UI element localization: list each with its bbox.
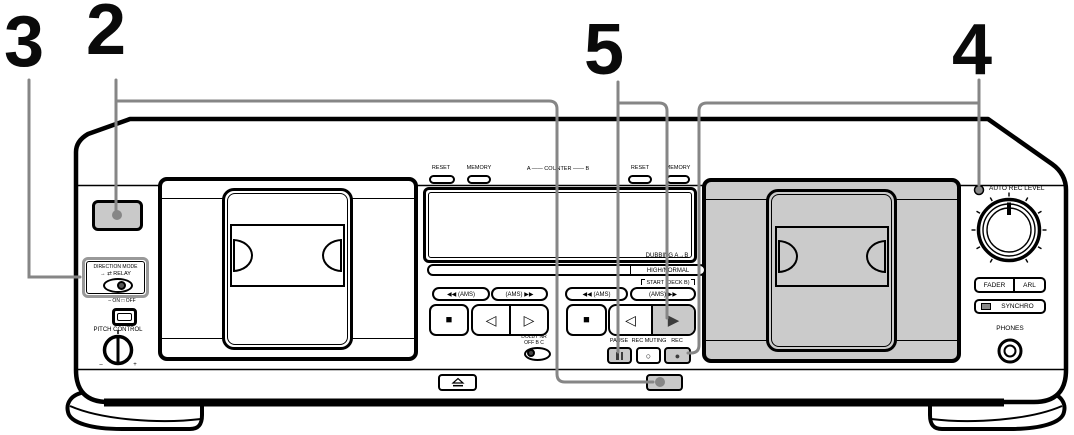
pitch-onoff-button-face: [117, 313, 132, 321]
dolby-nr-options: OFF B C: [514, 341, 554, 346]
fader-button[interactable]: FADER: [976, 279, 1015, 291]
dubbing-speed-label: HIGH/NORMAL: [632, 268, 704, 274]
dubbing-label: DUBBING A→B: [630, 253, 704, 259]
deck-a-play-reverse-button[interactable]: ◁: [473, 306, 509, 334]
deck-b-cassette-right-hub: [866, 240, 886, 273]
start-deck-b-label: START (DECK B): [626, 279, 710, 287]
play-forward-icon: ▷: [524, 312, 535, 329]
deck-b-eject-button[interactable]: [646, 374, 683, 391]
callout-step-3: 3: [4, 6, 42, 78]
deck-b-memory-button[interactable]: [666, 175, 690, 184]
direction-mode-switch-knob[interactable]: [117, 281, 126, 290]
pause-button[interactable]: [607, 347, 632, 364]
pitch-minus-mark: –: [97, 362, 105, 368]
auto-rec-level-led: [975, 186, 984, 195]
deck-b-reset-button[interactable]: [628, 175, 652, 184]
deck-b-play-buttons: ◁ ▶: [608, 304, 696, 336]
power-button[interactable]: [92, 200, 143, 231]
direction-mode-panel: DIRECTION MODE → ⇄ RELAY: [86, 261, 145, 294]
dolby-nr-switch[interactable]: [524, 347, 551, 361]
callout-step-2: 2: [86, 0, 124, 66]
deck-b-window: [766, 189, 897, 352]
deck-a-door[interactable]: [158, 177, 418, 361]
callout-step-4: 4: [952, 14, 990, 86]
deck-a-cassette: [230, 224, 345, 287]
deck-a-window: [222, 188, 353, 350]
display-panel-inner: [428, 192, 692, 258]
dubbing-speed-bar[interactable]: HIGH/NORMAL: [427, 264, 706, 276]
synchro-button-label: SYNCHRO: [991, 303, 1044, 310]
deck-a-stop-button[interactable]: ■: [429, 304, 469, 336]
deck-b-door[interactable]: [702, 178, 961, 363]
synchro-button[interactable]: SYNCHRO: [974, 299, 1046, 314]
counter-label: A —— COUNTER —— B: [520, 167, 596, 173]
stop-icon: ■: [446, 314, 453, 326]
deck-b-ffwd-ams-button[interactable]: (AMS) ▶▶: [630, 287, 696, 301]
deck-b-play-forward-button[interactable]: ▶: [653, 306, 694, 334]
auto-rec-level-label: AUTO REC LEVEL: [989, 186, 1069, 193]
phones-label: PHONES: [989, 326, 1031, 333]
arl-button-label: ARL: [1023, 282, 1036, 289]
pitch-onoff-label: – ON □ OFF: [92, 299, 152, 304]
callout-step-5: 5: [584, 14, 622, 86]
dolby-nr-label: DOLBY NR: [514, 335, 554, 340]
pitch-onoff-button[interactable]: [112, 308, 137, 326]
start-bracket-left: [641, 279, 645, 285]
pitch-plus-mark: +: [131, 362, 139, 368]
eject-icon: [450, 377, 466, 388]
deck-a-reset-label: RESET: [427, 166, 455, 172]
record-icon: ●: [675, 351, 680, 361]
arl-button[interactable]: ARL: [1015, 279, 1044, 291]
deck-a-memory-label: MEMORY: [462, 166, 496, 172]
deck-b-memory-label: MEMORY: [661, 166, 695, 172]
direction-mode-switch[interactable]: [103, 278, 133, 293]
pause-icon: [616, 352, 619, 360]
direction-mode-label: DIRECTION MODE: [87, 265, 144, 270]
stop-icon: ■: [583, 314, 590, 326]
plinth-band: [104, 399, 1004, 407]
rec-label: REC: [663, 339, 691, 345]
deck-b-reset-label: RESET: [626, 166, 654, 172]
pause-icon: [621, 352, 624, 360]
deck-b-play-reverse-button[interactable]: ◁: [610, 306, 651, 334]
dubbing-speed-divider: [630, 266, 631, 274]
deck-b-cassette-left-hub: [778, 240, 798, 273]
pitch-control-label: PITCH CONTROL: [78, 327, 158, 333]
deck-a-reset-button[interactable]: [429, 175, 455, 184]
fader-arl-buttons: FADER ARL: [974, 277, 1046, 293]
deck-b-rewind-ams-button[interactable]: ◀◀ (AMS): [565, 287, 628, 301]
start-bracket-right: [691, 279, 695, 285]
deck-a-play-buttons: ◁ ▷: [471, 304, 549, 336]
deck-b-stop-button[interactable]: ■: [566, 304, 607, 336]
rec-button[interactable]: ●: [664, 347, 691, 364]
phones-jack[interactable]: [999, 340, 1021, 362]
deck-a-eject-button[interactable]: [438, 374, 477, 391]
direction-mode-positions: → ⇄ RELAY: [87, 272, 144, 278]
play-forward-icon: ▶: [668, 311, 680, 329]
fader-button-label: FADER: [984, 282, 1006, 289]
dolby-nr-switch-knob[interactable]: [527, 349, 535, 357]
synchro-led-icon: [981, 303, 991, 310]
deck-a-cassette-left-hub: [233, 239, 253, 272]
rec-level-knob[interactable]: [979, 200, 1040, 261]
rec-muting-button[interactable]: ○: [636, 347, 661, 364]
play-reverse-icon: ◁: [486, 312, 497, 329]
rec-muting-icon: ○: [646, 351, 651, 361]
play-reverse-icon: ◁: [625, 312, 636, 329]
deck-a-play-forward-button[interactable]: ▷: [511, 306, 547, 334]
deck-a-rewind-ams-button[interactable]: ◀◀ (AMS): [432, 287, 490, 301]
deck-a-cassette-right-hub: [322, 239, 342, 272]
rec-muting-label: REC MUTING: [631, 339, 667, 345]
direction-mode-highlight: DIRECTION MODE → ⇄ RELAY: [82, 257, 149, 298]
deck-a-ffwd-ams-button[interactable]: (AMS) ▶▶: [491, 287, 548, 301]
cassette-deck-diagram: 3 2 5 4 DIRECTION MODE → ⇄ RELAY – ON □ …: [0, 0, 1074, 435]
deck-b-cassette: [775, 226, 889, 287]
deck-a-memory-button[interactable]: [467, 175, 491, 184]
